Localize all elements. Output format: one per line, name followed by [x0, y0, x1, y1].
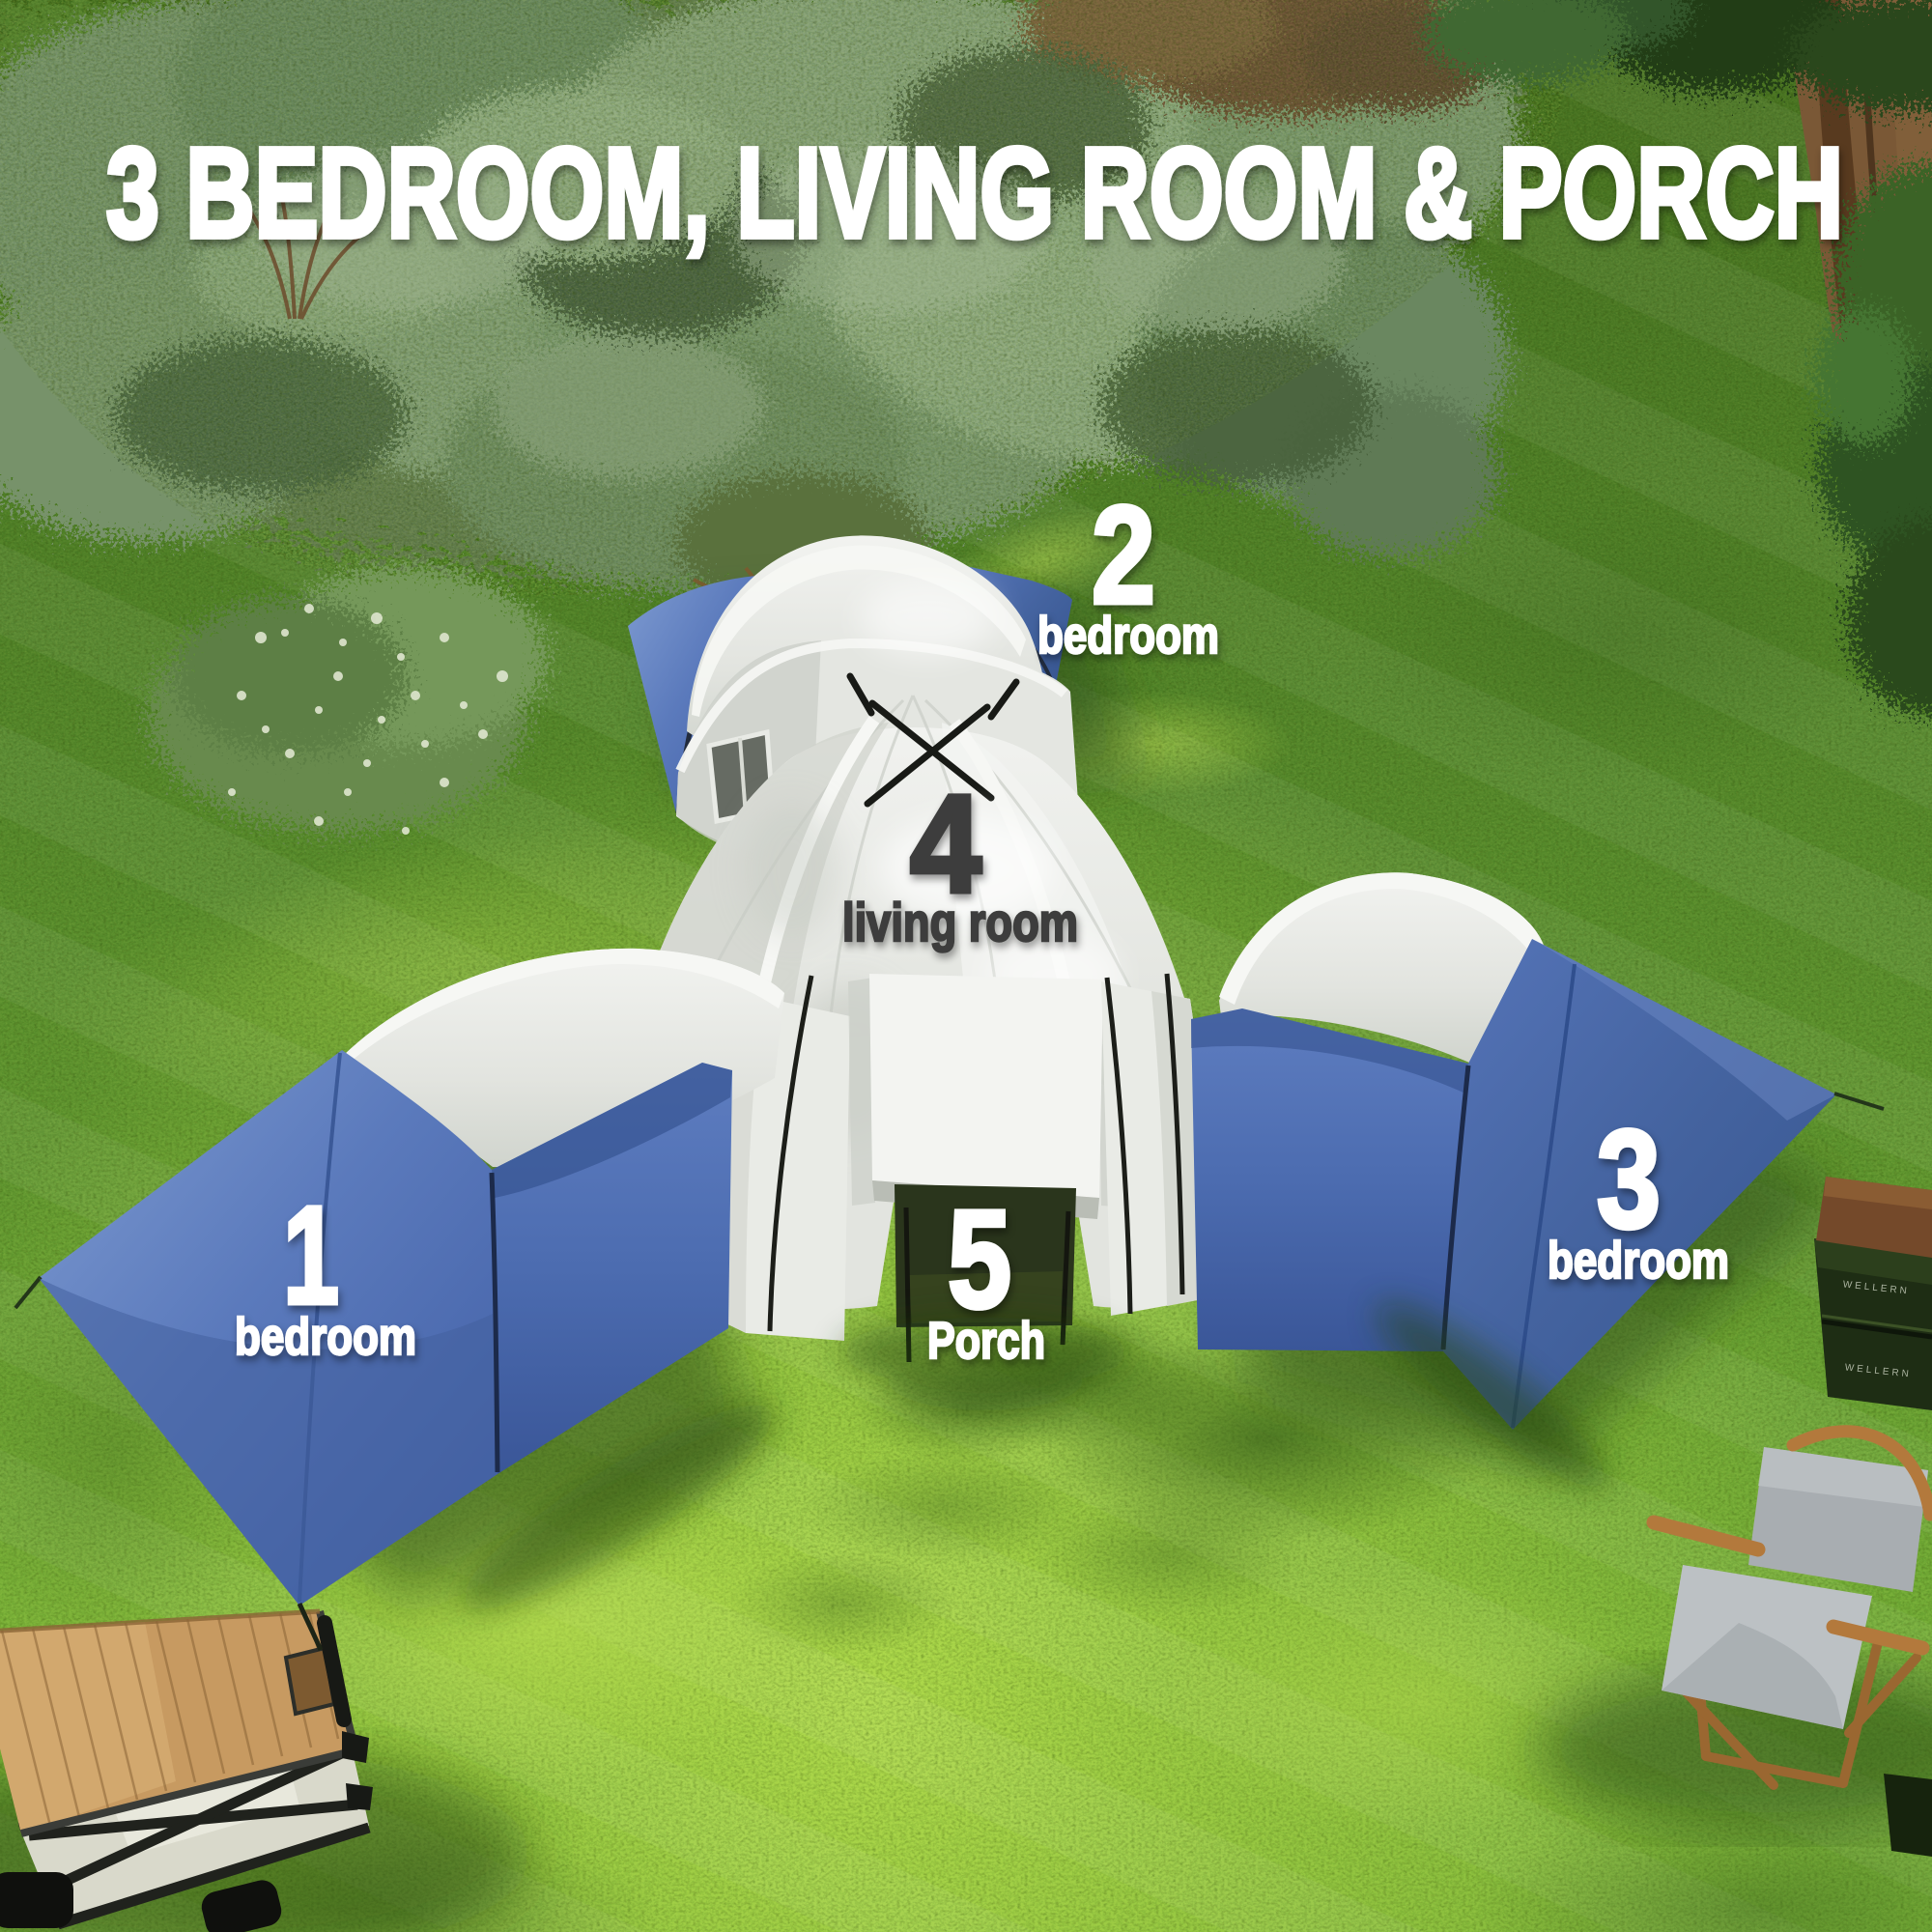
svg-text:bedroom: bedroom: [1548, 1232, 1729, 1290]
svg-text:living room: living room: [842, 892, 1078, 952]
svg-text:bedroom: bedroom: [235, 1308, 416, 1366]
svg-text:Porch: Porch: [927, 1312, 1045, 1370]
svg-text:bedroom: bedroom: [1037, 607, 1219, 665]
svg-text:3 BEDROOM, LIVING ROOM & PORCH: 3 BEDROOM, LIVING ROOM & PORCH: [106, 122, 1843, 264]
